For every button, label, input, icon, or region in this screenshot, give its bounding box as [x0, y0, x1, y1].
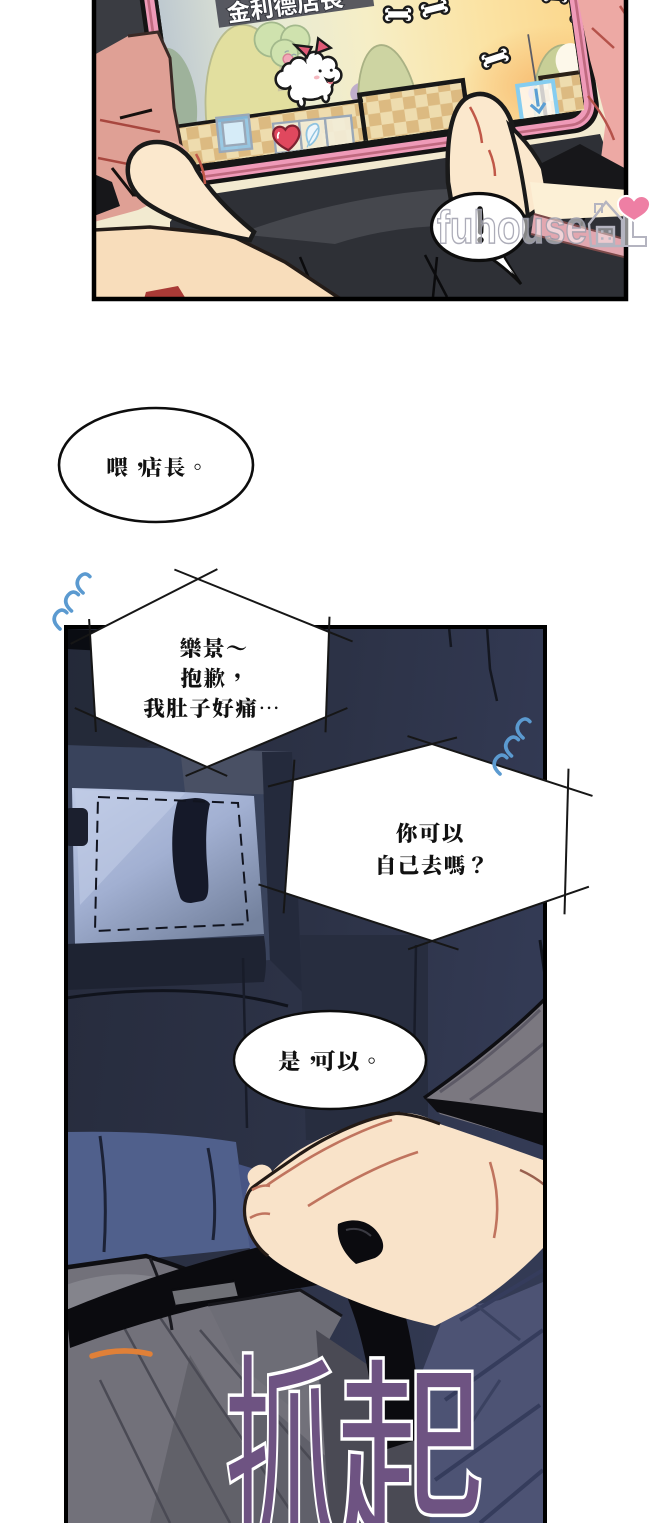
svg-text:fuhouse: fuhouse	[437, 201, 587, 253]
